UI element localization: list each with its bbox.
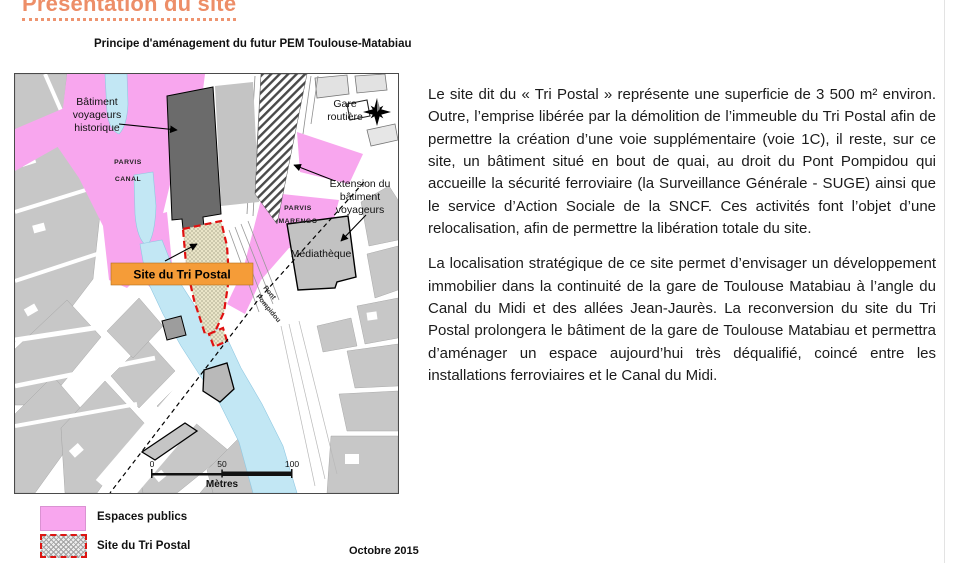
page-edge-line xyxy=(944,0,945,563)
legend-site-tri-postal-swatch xyxy=(40,534,87,558)
label-extension: bâtiment xyxy=(340,191,380,203)
label-extension: voyageurs xyxy=(336,204,384,216)
site-tri-postal-label: Site du Tri Postal xyxy=(111,263,253,285)
svg-text:50: 50 xyxy=(217,459,227,469)
label-parvis-canal: PARVIS xyxy=(114,159,142,166)
station-building xyxy=(167,87,221,229)
label-batiment-voyageurs: historique xyxy=(74,122,120,134)
document-page: Présentation du site Principe d'aménagem… xyxy=(0,0,953,563)
platform-block xyxy=(215,82,259,206)
label-parvis-marengo: PARVIS xyxy=(284,205,312,212)
bus-station-area xyxy=(315,74,398,146)
label-mediatheque: Médiathèque xyxy=(291,248,352,260)
article-text: Le site dit du « Tri Postal » représente… xyxy=(428,84,936,400)
label-batiment-voyageurs: Bâtiment xyxy=(76,96,118,108)
label-extension: Extension du xyxy=(330,178,391,190)
label-parvis-canal: CANAL xyxy=(115,176,141,183)
label-gare-routiere: routière xyxy=(327,111,363,123)
body-paragraph: La localisation stratégique de ce site p… xyxy=(428,253,936,387)
body-paragraph: Le site dit du « Tri Postal » représente… xyxy=(428,84,936,240)
label-parvis-marengo: MARENGO xyxy=(279,218,318,225)
legend-espaces-publics-swatch xyxy=(40,506,86,531)
map-graphic: Bâtiment voyageurs historique Gare routi… xyxy=(15,74,398,493)
svg-text:Site du Tri Postal: Site du Tri Postal xyxy=(133,268,230,282)
legend-site-tri-postal-label: Site du Tri Postal xyxy=(97,540,190,552)
label-batiment-voyageurs: voyageurs xyxy=(73,109,121,121)
page-title: Présentation du site xyxy=(22,0,236,21)
legend-espaces-publics-label: Espaces publics xyxy=(97,511,187,523)
svg-text:100: 100 xyxy=(285,459,299,469)
scale-unit-label: Mètres xyxy=(206,479,239,490)
label-gare-routiere: Gare xyxy=(333,98,357,110)
map-date: Octobre 2015 xyxy=(349,545,419,557)
figure-caption: Principe d'aménagement du futur PEM Toul… xyxy=(94,38,412,50)
svg-text:0: 0 xyxy=(150,459,155,469)
site-map: Bâtiment voyageurs historique Gare routi… xyxy=(14,73,399,494)
